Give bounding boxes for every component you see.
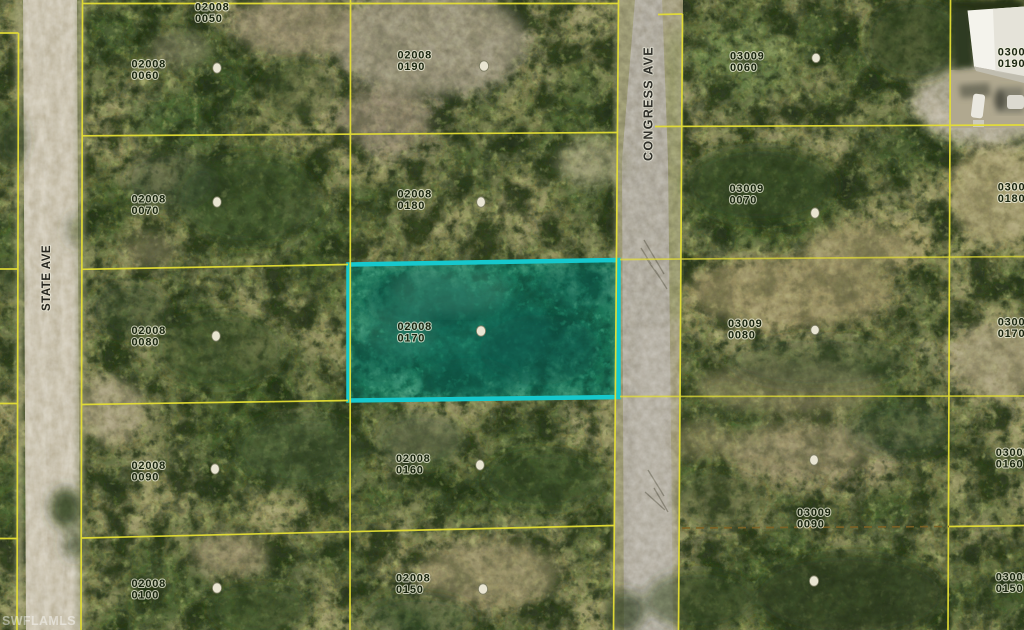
svg-text:0080: 0080 — [132, 337, 160, 349]
svg-text:02008: 02008 — [398, 321, 433, 333]
svg-text:02008: 02008 — [398, 189, 433, 201]
svg-text:03009: 03009 — [998, 182, 1024, 194]
svg-text:0080: 0080 — [728, 330, 756, 342]
svg-text:0070: 0070 — [132, 205, 160, 217]
svg-text:02008: 02008 — [132, 460, 167, 472]
svg-text:0060: 0060 — [132, 70, 160, 82]
svg-text:02008: 02008 — [398, 50, 433, 62]
svg-text:0190: 0190 — [998, 58, 1024, 70]
svg-text:0090: 0090 — [132, 472, 160, 484]
svg-text:03009: 03009 — [728, 318, 763, 330]
svg-text:0050: 0050 — [195, 13, 223, 25]
svg-text:0170: 0170 — [398, 333, 426, 345]
svg-text:0160: 0160 — [396, 465, 424, 477]
svg-text:02008: 02008 — [195, 2, 230, 14]
svg-text:03009: 03009 — [797, 507, 832, 519]
svg-text:0170: 0170 — [998, 328, 1024, 340]
svg-text:0180: 0180 — [998, 193, 1024, 205]
svg-text:0070: 0070 — [730, 195, 758, 207]
svg-text:0100: 0100 — [132, 590, 160, 602]
svg-text:02008: 02008 — [132, 194, 167, 206]
svg-text:03009: 03009 — [996, 572, 1024, 584]
svg-text:0150: 0150 — [396, 584, 424, 596]
svg-text:03009: 03009 — [730, 51, 765, 63]
svg-text:02008: 02008 — [132, 325, 167, 337]
svg-text:03009: 03009 — [998, 46, 1024, 58]
svg-text:03009: 03009 — [998, 317, 1024, 329]
svg-text:02008: 02008 — [132, 59, 167, 71]
svg-text:STATE AVE: STATE AVE — [41, 245, 53, 311]
svg-text:SWFLAMLS: SWFLAMLS — [2, 614, 76, 628]
svg-text:03009: 03009 — [730, 183, 765, 195]
svg-text:0180: 0180 — [398, 200, 426, 212]
svg-text:02008: 02008 — [396, 453, 431, 465]
svg-text:0150: 0150 — [996, 583, 1024, 595]
svg-text:0060: 0060 — [730, 62, 758, 74]
svg-text:0160: 0160 — [996, 459, 1024, 471]
svg-text:03009: 03009 — [996, 447, 1024, 459]
svg-text:0090: 0090 — [797, 519, 825, 531]
svg-text:02008: 02008 — [396, 573, 431, 585]
svg-text:02008: 02008 — [132, 578, 167, 590]
svg-text:CONGRESS AVE: CONGRESS AVE — [642, 46, 656, 161]
svg-text:0190: 0190 — [398, 61, 426, 73]
